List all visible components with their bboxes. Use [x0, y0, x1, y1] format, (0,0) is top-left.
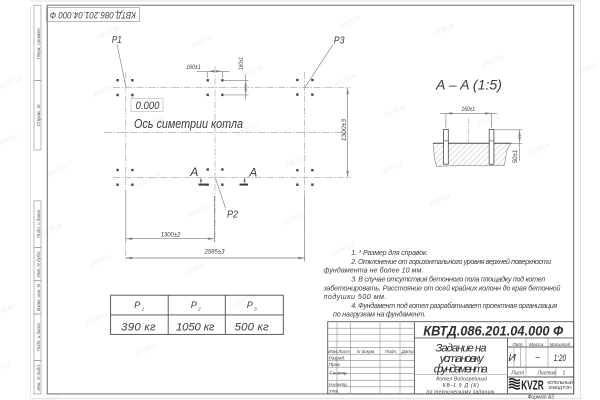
svg-text:Инв. N дубл.: Инв. N дубл.	[36, 251, 41, 278]
svg-text:подушки 500 мм.: подушки 500 мм.	[324, 293, 387, 301]
svg-text:Дата: Дата	[401, 349, 415, 354]
svg-text:P1: P1	[112, 34, 122, 46]
svg-text:И: И	[508, 352, 516, 364]
svg-text:A – A (1:5): A – A (1:5)	[435, 77, 502, 92]
svg-text:1300±3: 1300±3	[341, 118, 348, 141]
svg-text:P: P	[191, 300, 197, 310]
svg-text:Подп.: Подп.	[385, 349, 397, 354]
svg-text:КВЗР.ру: КВЗР.ру	[432, 21, 457, 38]
svg-text:КВЗР.ру: КВЗР.ру	[138, 171, 163, 188]
svg-text:Н.контр.: Н.контр.	[329, 382, 348, 387]
svg-text:1300±2: 1300±2	[161, 231, 181, 238]
svg-text:КВЗР.ру: КВЗР.ру	[190, 32, 215, 49]
svg-text:КВЗР.ру: КВЗР.ру	[334, 71, 359, 88]
svg-text:Котел Водогрейный: Котел Водогрейный	[436, 375, 487, 382]
svg-text:КВЗР.ру: КВЗР.ру	[481, 52, 506, 69]
svg-text:КВЗР.ру: КВЗР.ру	[383, 102, 408, 119]
svg-text:КВЗР.ру: КВЗР.ру	[89, 252, 114, 269]
svg-text:КВЗР.ру: КВЗР.ру	[0, 74, 23, 91]
svg-text:КВЗР.ру: КВЗР.ру	[338, 13, 363, 30]
svg-text:КВЗР.ру: КВЗР.ру	[477, 110, 502, 127]
svg-text:Изм.Лист: Изм.Лист	[328, 349, 350, 354]
svg-text:Подп. и дата: Подп. и дата	[36, 210, 41, 238]
svg-text:КВЗР.ру: КВЗР.ру	[85, 310, 110, 327]
svg-text:КВЗР.ру: КВЗР.ру	[135, 341, 160, 358]
svg-text:КВЗР.ру: КВЗР.ру	[0, 302, 16, 319]
svg-text:500 кг: 500 кг	[235, 321, 269, 333]
svg-text:N докум.: N докум.	[357, 349, 376, 354]
svg-text:160±1: 160±1	[238, 57, 245, 70]
svg-text:по нагрузкам на фундамент.: по нагрузкам на фундамент.	[333, 310, 426, 318]
svg-text:Ось симетрии котла: Ось симетрии котла	[134, 116, 243, 131]
svg-text:Утв.: Утв.	[329, 388, 339, 393]
svg-text:KVZR: KVZR	[521, 378, 544, 392]
svg-text:1:20: 1:20	[554, 353, 567, 364]
svg-text:2595±3: 2595±3	[204, 248, 226, 255]
svg-text:1050 кг: 1050 кг	[176, 321, 215, 333]
svg-text:160±1: 160±1	[186, 64, 201, 71]
svg-text:4. Фундамент под котел разраба: 4. Фундамент под котел разрабатывает про…	[351, 302, 557, 310]
svg-text:Пров.: Пров.	[329, 362, 341, 367]
svg-text:P: P	[134, 300, 140, 310]
svg-text:ЗАВОД РЭП: ЗАВОД РЭП	[548, 385, 571, 390]
svg-text:КВЗР.ру: КВЗР.ру	[379, 160, 404, 177]
svg-text:Т.контр.: Т.контр.	[329, 370, 348, 375]
svg-text:1: 1	[563, 370, 566, 376]
svg-text:A: A	[189, 165, 198, 179]
svg-text:фундамента не более 10 мм.: фундамента не более 10 мм.	[324, 267, 424, 275]
svg-text:Подп. и дата: Подп. и дата	[36, 323, 41, 351]
svg-text:0.000: 0.000	[136, 100, 161, 112]
svg-text:3. В случае отсутствия бетонно: 3. В случае отсутствия бетонного пола пл…	[351, 276, 545, 284]
svg-text:50±1: 50±1	[512, 150, 519, 164]
svg-text:КВЗР.ру: КВЗР.ру	[429, 191, 454, 208]
svg-text:по техническому заданию: по техническому заданию	[426, 389, 494, 395]
svg-text:3: 3	[254, 306, 257, 311]
svg-text:1. * Размер для справок.: 1. * Размер для справок.	[351, 249, 428, 257]
svg-text:2: 2	[197, 306, 201, 311]
svg-text:забетонировать. Расстояние от: забетонировать. Расстояние от осей крайн…	[323, 284, 561, 292]
svg-text:КВЗР.ру: КВЗР.ру	[527, 141, 552, 158]
svg-text:Разраб.: Разраб.	[329, 355, 346, 360]
svg-text:390 кг: 390 кг	[121, 321, 156, 333]
svg-text:Взам. инв. N: Взам. инв. N	[36, 283, 41, 311]
svg-text:Масса: Масса	[529, 342, 544, 348]
svg-text:160±1: 160±1	[462, 106, 476, 113]
svg-text:Листов: Листов	[537, 370, 557, 376]
svg-text:КВТД.086.201.04.000 Ф: КВТД.086.201.04.000 Ф	[49, 10, 136, 20]
svg-text:КВЗР.ру: КВЗР.ру	[575, 61, 600, 78]
svg-text:2. Отклонение от горизонтально: 2. Отклонение от горизонтального уровня …	[350, 258, 551, 266]
svg-text:P2: P2	[227, 208, 238, 220]
svg-text:КВЗР.ру: КВЗР.ру	[0, 132, 19, 149]
svg-text:–: –	[535, 353, 541, 362]
svg-text:КВ-1,9 Д (К): КВ-1,9 Д (К)	[443, 383, 479, 389]
svg-text:фундамента: фундамента	[434, 363, 488, 375]
svg-text:Перв. примен.: Перв. примен.	[36, 27, 41, 59]
svg-text:Формат А3: Формат А3	[528, 394, 554, 400]
svg-text:КВЗР.ру: КВЗР.ру	[285, 152, 310, 169]
svg-text:КОТЕЛЬНЫЙ: КОТЕЛЬНЫЙ	[547, 378, 573, 385]
svg-text:Лит.: Лит.	[512, 342, 524, 348]
svg-text:Масштаб: Масштаб	[550, 342, 571, 348]
svg-text:КВТД.086.201.04.000 Ф: КВТД.086.201.04.000 Ф	[423, 324, 563, 339]
svg-text:КВЗР.ру: КВЗР.ру	[187, 202, 212, 219]
svg-text:КВЗР.ру: КВЗР.ру	[40, 221, 65, 238]
svg-text:P: P	[247, 300, 253, 310]
svg-text:A: A	[248, 165, 257, 179]
svg-text:Справ. N: Справ. N	[36, 104, 41, 127]
svg-text:КВЗР.ру: КВЗР.ру	[92, 82, 117, 99]
svg-text:КВЗР.ру: КВЗР.ру	[183, 260, 208, 277]
svg-text:Лист: Лист	[510, 370, 524, 376]
svg-text:P3: P3	[334, 34, 345, 46]
svg-text:1: 1	[142, 306, 145, 311]
svg-text:КВЗР.ру: КВЗР.ру	[0, 360, 12, 377]
svg-text:Инв. N подл.: Инв. N подл.	[36, 364, 41, 391]
svg-text:КВЗР.ру: КВЗР.ру	[281, 210, 306, 227]
